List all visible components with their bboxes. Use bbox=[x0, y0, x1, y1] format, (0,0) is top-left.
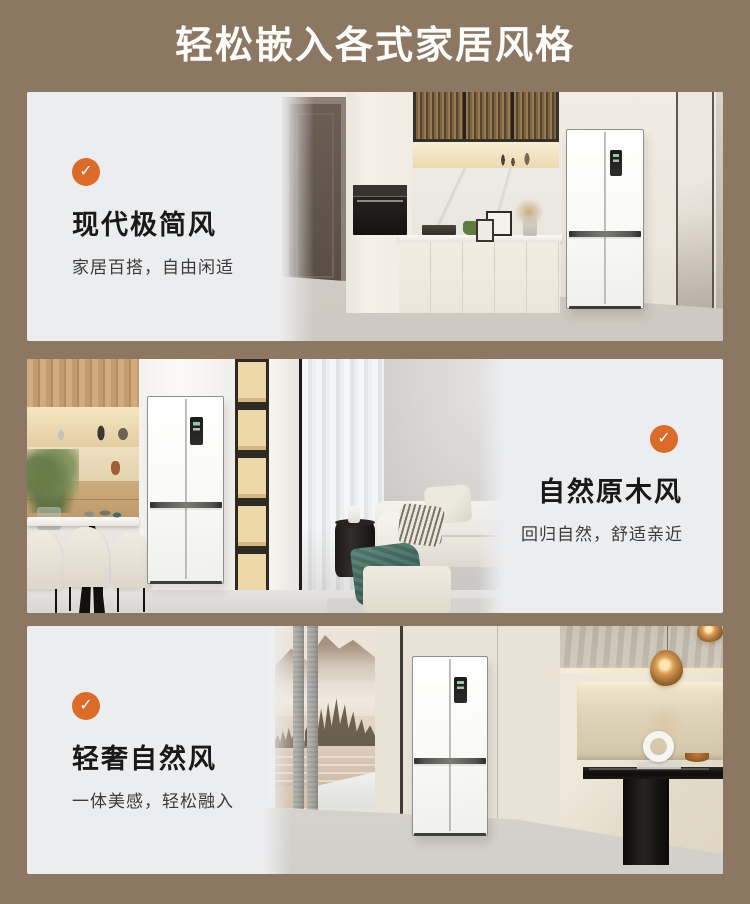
style-subtitle: 家居百搭，自由闲适 bbox=[72, 253, 234, 278]
fridge-door-seam bbox=[185, 399, 187, 579]
fridge-base bbox=[414, 833, 485, 836]
white-ring-sculpture bbox=[643, 731, 674, 762]
style-panel-light-luxury: ✓ 轻奢自然风 一体美感，轻松融入 bbox=[27, 626, 723, 874]
dining-living-photo bbox=[27, 359, 507, 613]
niche-vases bbox=[37, 411, 137, 445]
fridge-handle-band bbox=[150, 502, 222, 508]
counter-tray bbox=[422, 225, 456, 235]
shelf-bottles bbox=[495, 148, 535, 168]
fridge-base bbox=[569, 306, 642, 309]
fridge-handle-band bbox=[569, 231, 642, 237]
kitchen-photo bbox=[280, 92, 723, 341]
panel-text-block: ✓ 现代极简风 家居百搭，自由闲适 bbox=[72, 158, 234, 278]
glass-upper-cabinet bbox=[413, 92, 559, 142]
style-subtitle: 一体美感，轻松融入 bbox=[72, 787, 234, 812]
photo-fade-edge bbox=[280, 92, 314, 341]
dining-chair bbox=[27, 531, 63, 589]
check-badge-icon: ✓ bbox=[72, 158, 100, 186]
promo-page: 轻松嵌入各式家居风格 bbox=[0, 0, 750, 904]
glass-vase bbox=[523, 218, 537, 236]
white-vase bbox=[348, 506, 360, 523]
table-books bbox=[637, 762, 681, 767]
fridge-display bbox=[610, 150, 623, 177]
striped-pillow bbox=[397, 503, 445, 547]
ottoman bbox=[363, 566, 451, 613]
refrigerator bbox=[147, 396, 224, 584]
refrigerator bbox=[412, 656, 488, 836]
style-subtitle: 回归自然，舒适亲近 bbox=[521, 520, 683, 545]
dining-table bbox=[27, 517, 139, 526]
photo-fade-edge bbox=[265, 626, 291, 874]
white-wall-column bbox=[269, 359, 299, 602]
luxury-dining-photo bbox=[265, 626, 723, 874]
dining-chair bbox=[111, 532, 151, 588]
fridge-display bbox=[454, 677, 467, 704]
photo-frames bbox=[486, 211, 512, 236]
green-plant bbox=[27, 449, 79, 513]
check-badge-icon: ✓ bbox=[650, 425, 678, 453]
style-panel-natural-wood: ✓ 自然原木风 回归自然，舒适亲近 bbox=[27, 359, 723, 613]
fridge-display bbox=[190, 417, 203, 445]
page-title: 轻松嵌入各式家居风格 bbox=[0, 14, 750, 69]
lower-cabinets bbox=[399, 242, 560, 313]
fridge-door-seam bbox=[449, 659, 451, 832]
black-table-top bbox=[583, 767, 723, 779]
refrigerator bbox=[566, 129, 644, 309]
lit-shelf-niche bbox=[413, 142, 559, 168]
panel-text-block: ✓ 自然原木风 回归自然，舒适亲近 bbox=[521, 425, 683, 545]
wall-seam-faint bbox=[497, 626, 498, 818]
style-heading: 自然原木风 bbox=[538, 470, 683, 509]
tableware bbox=[79, 509, 123, 518]
tall-shelf-column bbox=[235, 359, 269, 601]
style-heading: 轻奢自然风 bbox=[72, 737, 217, 776]
panel-text-block: ✓ 轻奢自然风 一体美感，轻松融入 bbox=[72, 692, 234, 812]
fridge-door-seam bbox=[604, 132, 606, 305]
glass-partition-edge bbox=[716, 92, 723, 314]
check-badge-icon: ✓ bbox=[72, 692, 100, 720]
black-table-pedestal bbox=[623, 779, 669, 865]
style-heading: 现代极简风 bbox=[72, 203, 217, 242]
glass-partition bbox=[676, 92, 714, 312]
wooden-bowl bbox=[685, 753, 709, 762]
fridge-handle-band bbox=[414, 758, 485, 764]
amber-pendant-light bbox=[650, 650, 683, 686]
dining-chair bbox=[63, 527, 109, 587]
fridge-base bbox=[150, 581, 222, 584]
wall-seam-dark bbox=[400, 626, 403, 818]
style-panel-modern-minimal: ✓ 现代极简风 家居百搭，自由闲适 bbox=[27, 92, 723, 341]
photo-fade-edge bbox=[478, 359, 508, 613]
built-in-oven bbox=[353, 185, 407, 235]
